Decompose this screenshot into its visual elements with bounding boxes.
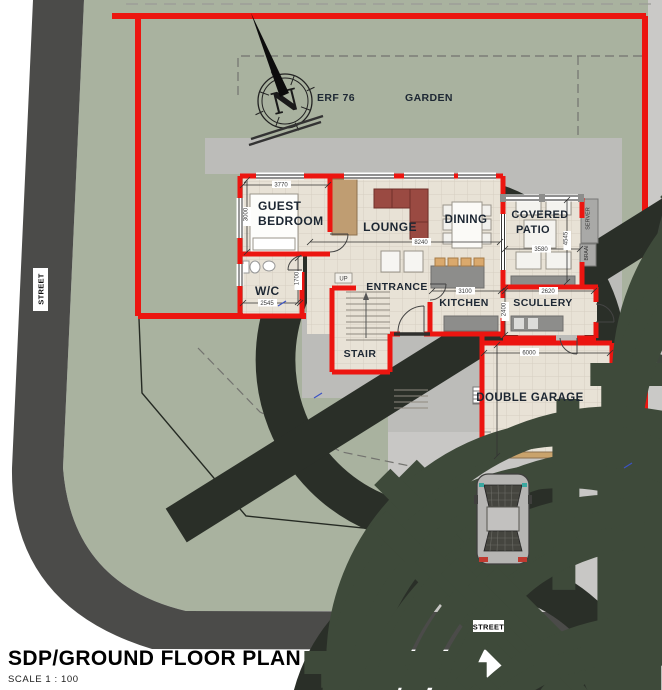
window [344,173,394,180]
room-label-wc: W/C [255,284,280,298]
basin [263,261,275,271]
room-label-patio-1: COVERED [511,209,568,221]
drawing-scale: SCALE 1 : 100 [8,674,79,685]
car-icon [474,474,532,564]
armchair [404,251,423,272]
dim-scullery-width: 2620 [541,289,555,295]
room-label-dining: DINING [445,214,488,226]
toilet [250,261,260,273]
room-label-garage: DOUBLE GARAGE [476,392,583,404]
dim-living-width: 8240 [414,240,428,246]
window [237,198,244,238]
sliding-door [500,214,506,270]
room-label-entrance: ENTRANCE [366,281,428,293]
dim-garage-width: 6000 [522,351,536,357]
drawing-title: SDP/GROUND FLOOR PLAN [8,647,301,670]
room-label-lounge: LOUNGE [363,220,417,234]
server-label: SERVER [586,207,592,230]
up-label: UP [339,277,347,283]
room-label-patio-2: PATIO [516,224,550,236]
kitchen-counter [444,316,498,331]
appliance [528,318,538,329]
appliance [514,318,524,329]
wardrobe [332,179,357,235]
street-label-bottom: STREET [473,623,505,632]
erf-label: ERF 76 [317,92,355,104]
dim-wc-depth: 1700 [295,271,301,285]
armchair [381,251,400,272]
dim-bedroom-width: 3770 [274,183,288,189]
window [404,173,454,180]
braai-label: BRAAI [584,245,590,260]
room-label-guest-bedroom-1: GUEST [258,199,302,213]
garden-label: GARDEN [405,92,453,104]
dim-kitchen-width: 3100 [458,289,472,295]
patio-opening [500,194,584,202]
window [458,173,496,180]
dim-kitchen-depth: 2400 [502,302,508,316]
dim-patio-depth: 4545 [564,231,570,245]
room-label-kitchen: KITCHEN [439,297,488,309]
room-label-scullery: SCULLERY [513,297,572,309]
toilet-cistern [243,261,249,273]
window [256,173,304,180]
street-label-left: STREET [37,273,46,305]
kitchen-island [431,266,484,288]
floor-plan-sheet: N 3770 3000 2545 1700 8240 3100 [0,0,662,690]
dim-wc-width: 2545 [260,301,274,307]
room-label-guest-bedroom-2: BEDROOM [258,214,323,228]
dim-bedroom-depth: 3000 [244,207,250,221]
floor-plan-drawing: N 3770 3000 2545 1700 8240 3100 [0,0,662,690]
window [237,264,244,286]
room-label-stair: STAIR [344,348,377,360]
dim-patio-width: 3580 [534,247,548,253]
bed-pillows [253,238,295,250]
